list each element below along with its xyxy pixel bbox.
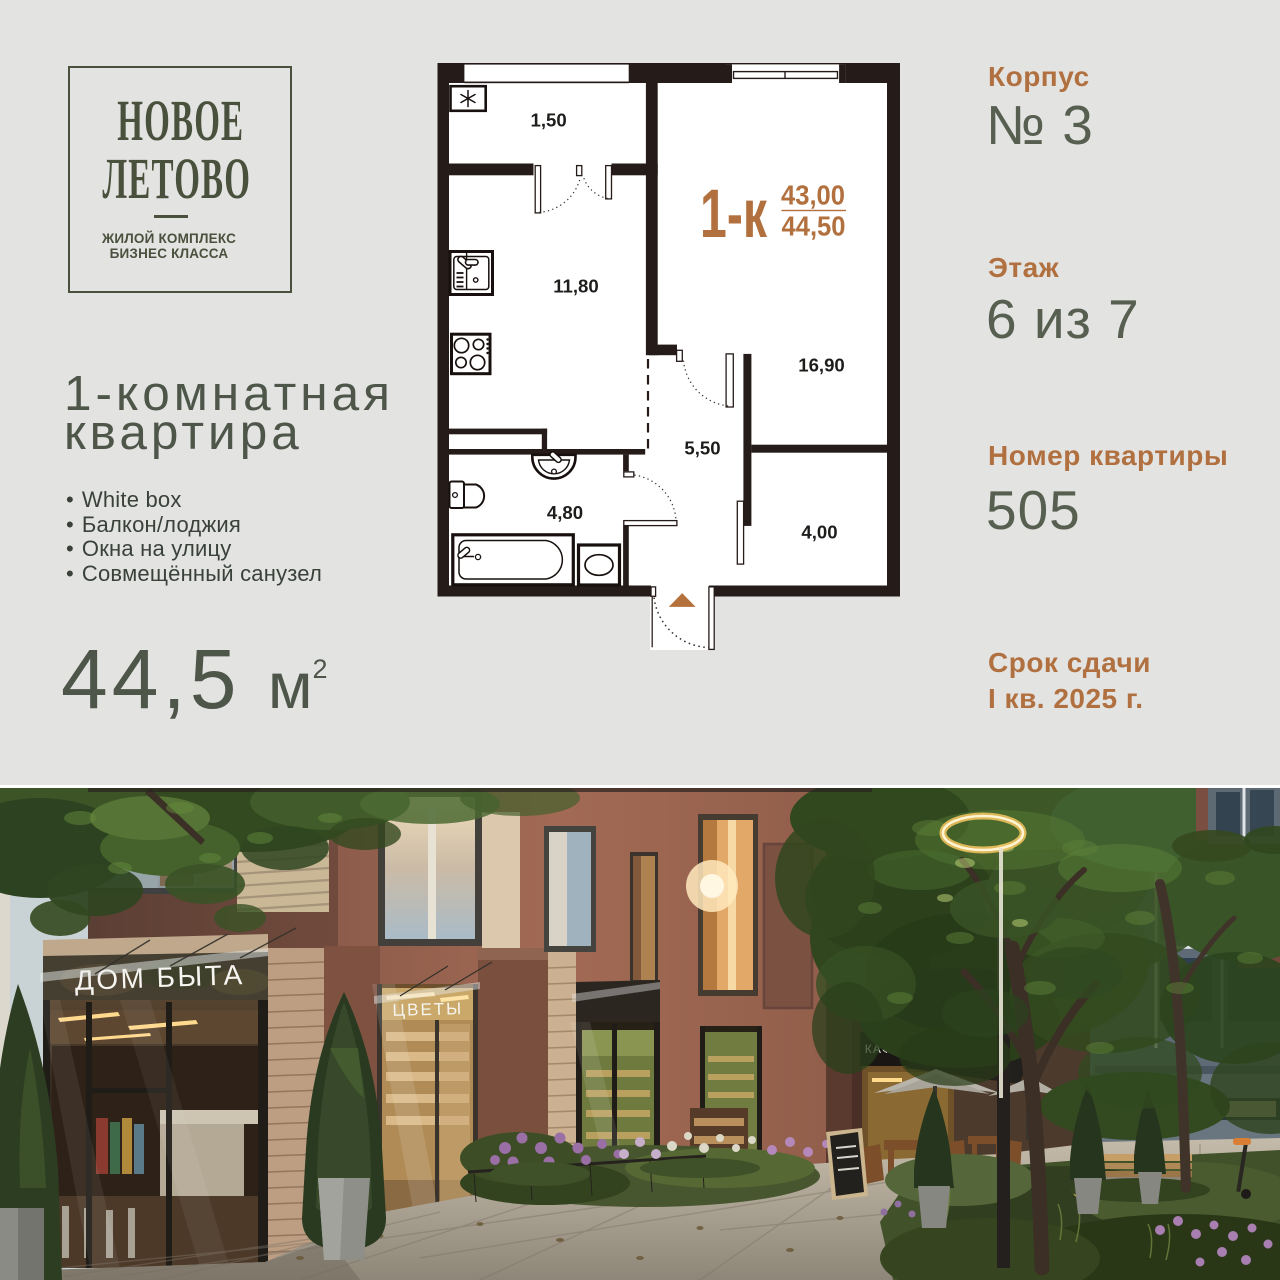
svg-text:1-к: 1-к [700,175,767,252]
svg-text:44,50: 44,50 [782,211,846,242]
svg-text:5,50: 5,50 [684,438,720,459]
svg-text:4,00: 4,00 [801,522,837,543]
svg-text:16,90: 16,90 [798,355,845,376]
svg-text:ЦВЕТЫ: ЦВЕТЫ [392,999,463,1020]
svg-text:4,80: 4,80 [547,502,583,523]
svg-text:11,80: 11,80 [553,276,599,297]
svg-text:43,00: 43,00 [781,180,845,211]
svg-text:1,50: 1,50 [530,110,566,131]
